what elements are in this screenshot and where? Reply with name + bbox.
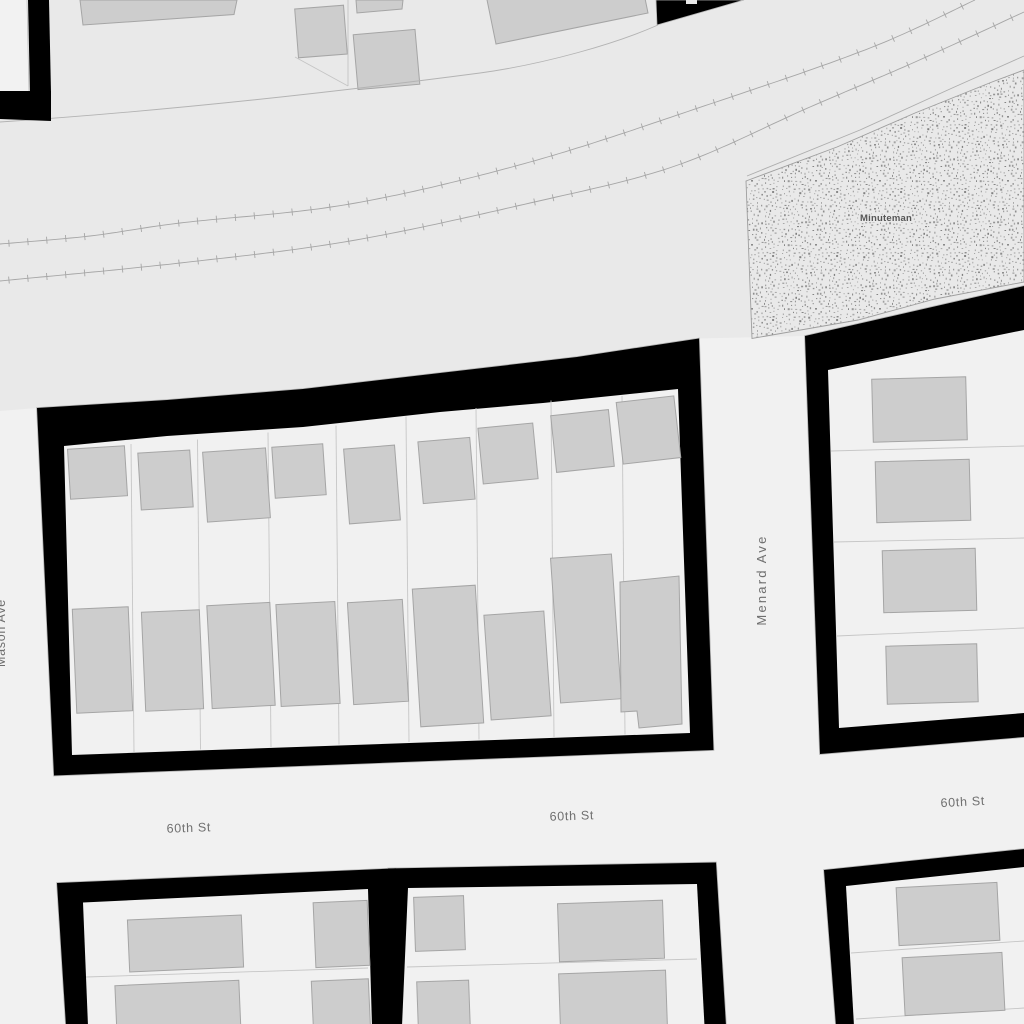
svg-text:60th St: 60th St: [549, 808, 594, 824]
svg-text:Minuteman: Minuteman: [860, 213, 912, 224]
svg-text:60th St: 60th St: [940, 794, 985, 810]
svg-text:Mason Ave: Mason Ave: [0, 599, 8, 667]
svg-text:60th St: 60th St: [166, 820, 211, 836]
svg-text:Menard Ave: Menard Ave: [754, 534, 769, 625]
